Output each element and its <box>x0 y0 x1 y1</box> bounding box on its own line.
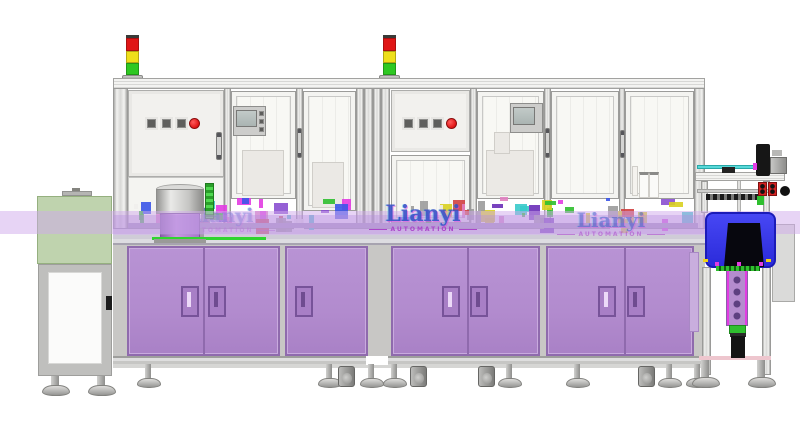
machine-render-scene: Lianyi AUTOMATION Lianyi AUTOMATION Lian… <box>0 0 800 438</box>
station-slider-block <box>722 167 735 173</box>
process-level-band-inner <box>113 215 705 235</box>
station-top-motor <box>756 144 770 176</box>
deck-component <box>478 201 485 211</box>
deck-component <box>411 206 414 210</box>
station-purple-actuator <box>726 270 748 326</box>
station-press-opening <box>724 223 764 267</box>
station-motor-cap <box>772 150 782 156</box>
deck-component <box>242 198 249 204</box>
deck-component <box>323 199 335 204</box>
station-green-sensor <box>757 196 764 205</box>
deck-component <box>134 204 138 209</box>
yellow-marker <box>766 259 771 262</box>
station-green-track <box>716 266 760 271</box>
deck-component <box>669 202 683 207</box>
station-magenta-stop <box>753 163 757 170</box>
actuator-black-cylinder <box>731 336 745 358</box>
station-red-clamp-1 <box>758 182 767 196</box>
yellow-marker <box>703 259 708 262</box>
bowl-feeder-flange <box>154 239 206 243</box>
deck-component <box>492 204 503 208</box>
deck-component <box>545 201 556 205</box>
deck-component <box>606 198 610 201</box>
station-red-clamp-2 <box>768 182 777 196</box>
station-adjust-knob <box>780 186 790 196</box>
deck-component <box>259 199 263 208</box>
deck-component <box>500 197 508 201</box>
actuator-holes <box>731 274 743 322</box>
deck-component <box>558 200 563 204</box>
station-motor-bracket <box>770 157 787 174</box>
station-rack-strip <box>706 194 764 200</box>
